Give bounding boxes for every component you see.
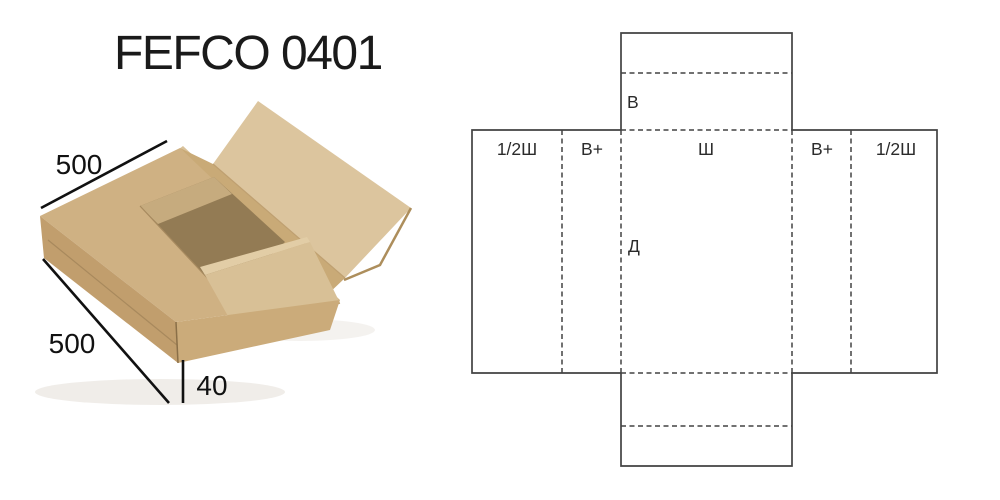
panel-label-width: Ш xyxy=(698,139,714,159)
panel-label-height-plus-left: В+ xyxy=(581,139,603,159)
page: FEFCO 0401 50 xyxy=(0,0,1000,500)
panel-label-half-width-right: 1/2Ш xyxy=(876,139,916,159)
box-photo-illustration: 500 500 40 xyxy=(0,0,440,500)
dieline-top-flap-outline xyxy=(621,33,792,130)
dieline-diagram: 1/2Ш В+ Ш В+ 1/2Ш В Д xyxy=(440,0,1000,500)
dieline-band-outline xyxy=(472,130,937,373)
dimension-label-side: 500 xyxy=(49,328,96,359)
dimension-label-top: 500 xyxy=(56,149,103,180)
dimension-label-height: 40 xyxy=(196,370,227,401)
dieline-bottom-flap-outline xyxy=(621,373,792,466)
flap-height-label: В xyxy=(627,92,639,112)
panel-label-height-plus-right: В+ xyxy=(811,139,833,159)
panel-label-half-width-left: 1/2Ш xyxy=(497,139,537,159)
length-label: Д xyxy=(628,236,640,256)
